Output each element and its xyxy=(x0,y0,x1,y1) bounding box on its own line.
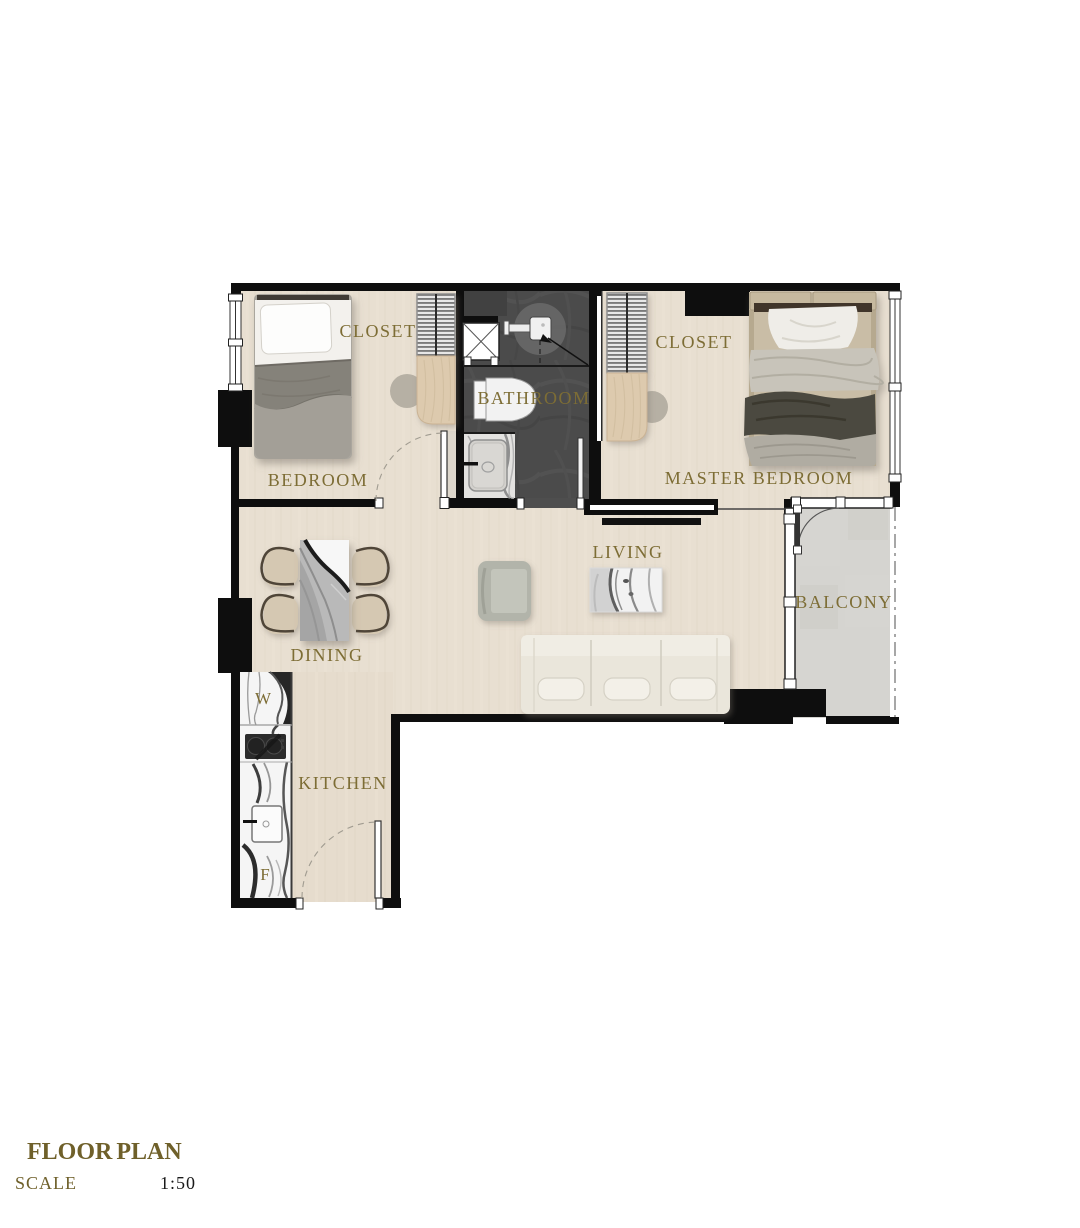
svg-text:1:50: 1:50 xyxy=(160,1173,196,1193)
svg-text:CLOSET: CLOSET xyxy=(655,332,732,352)
svg-text:KITCHEN: KITCHEN xyxy=(298,773,388,793)
svg-text:CLOSET: CLOSET xyxy=(339,321,416,341)
svg-text:FLOOR PLAN: FLOOR PLAN xyxy=(27,1139,182,1165)
svg-text:BATHROOM: BATHROOM xyxy=(477,388,590,408)
svg-text:BALCONY: BALCONY xyxy=(795,592,893,612)
svg-text:SCALE: SCALE xyxy=(15,1173,77,1193)
svg-text:MASTER BEDROOM: MASTER BEDROOM xyxy=(665,468,854,488)
svg-text:BEDROOM: BEDROOM xyxy=(268,470,369,490)
svg-text:F: F xyxy=(260,865,269,884)
svg-text:W: W xyxy=(255,689,272,708)
svg-text:LIVING: LIVING xyxy=(593,542,664,562)
svg-text:DINING: DINING xyxy=(291,645,364,665)
